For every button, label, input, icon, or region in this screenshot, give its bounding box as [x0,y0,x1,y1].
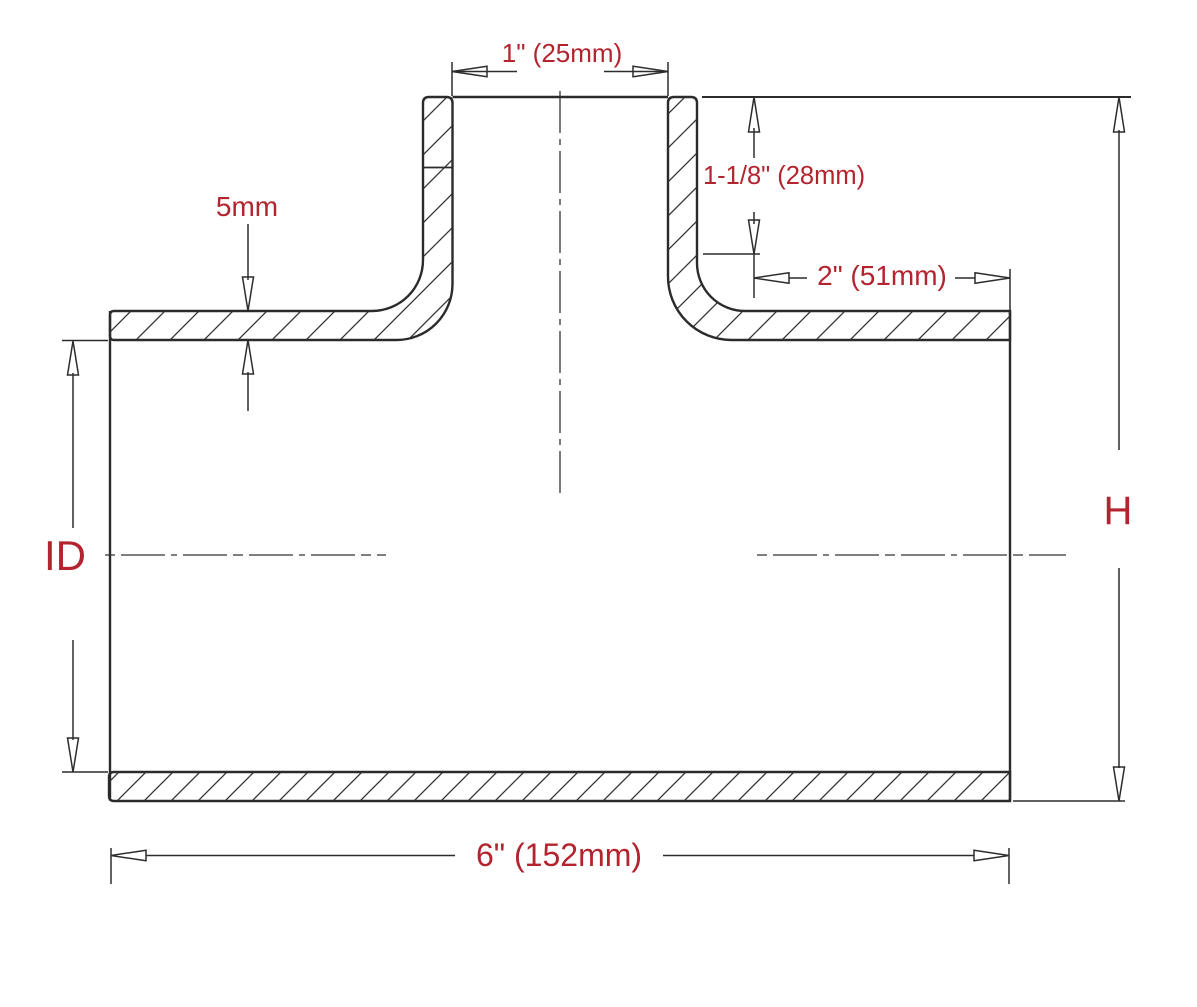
svg-text:1-1/8" (28mm): 1-1/8" (28mm) [703,162,865,190]
svg-text:5mm: 5mm [216,191,278,222]
svg-text:1" (25mm): 1" (25mm) [502,38,622,68]
svg-text:H: H [1104,489,1133,533]
svg-text:6" (152mm): 6" (152mm) [476,837,642,873]
svg-text:2" (51mm): 2" (51mm) [817,260,947,291]
svg-text:ID: ID [44,532,86,579]
